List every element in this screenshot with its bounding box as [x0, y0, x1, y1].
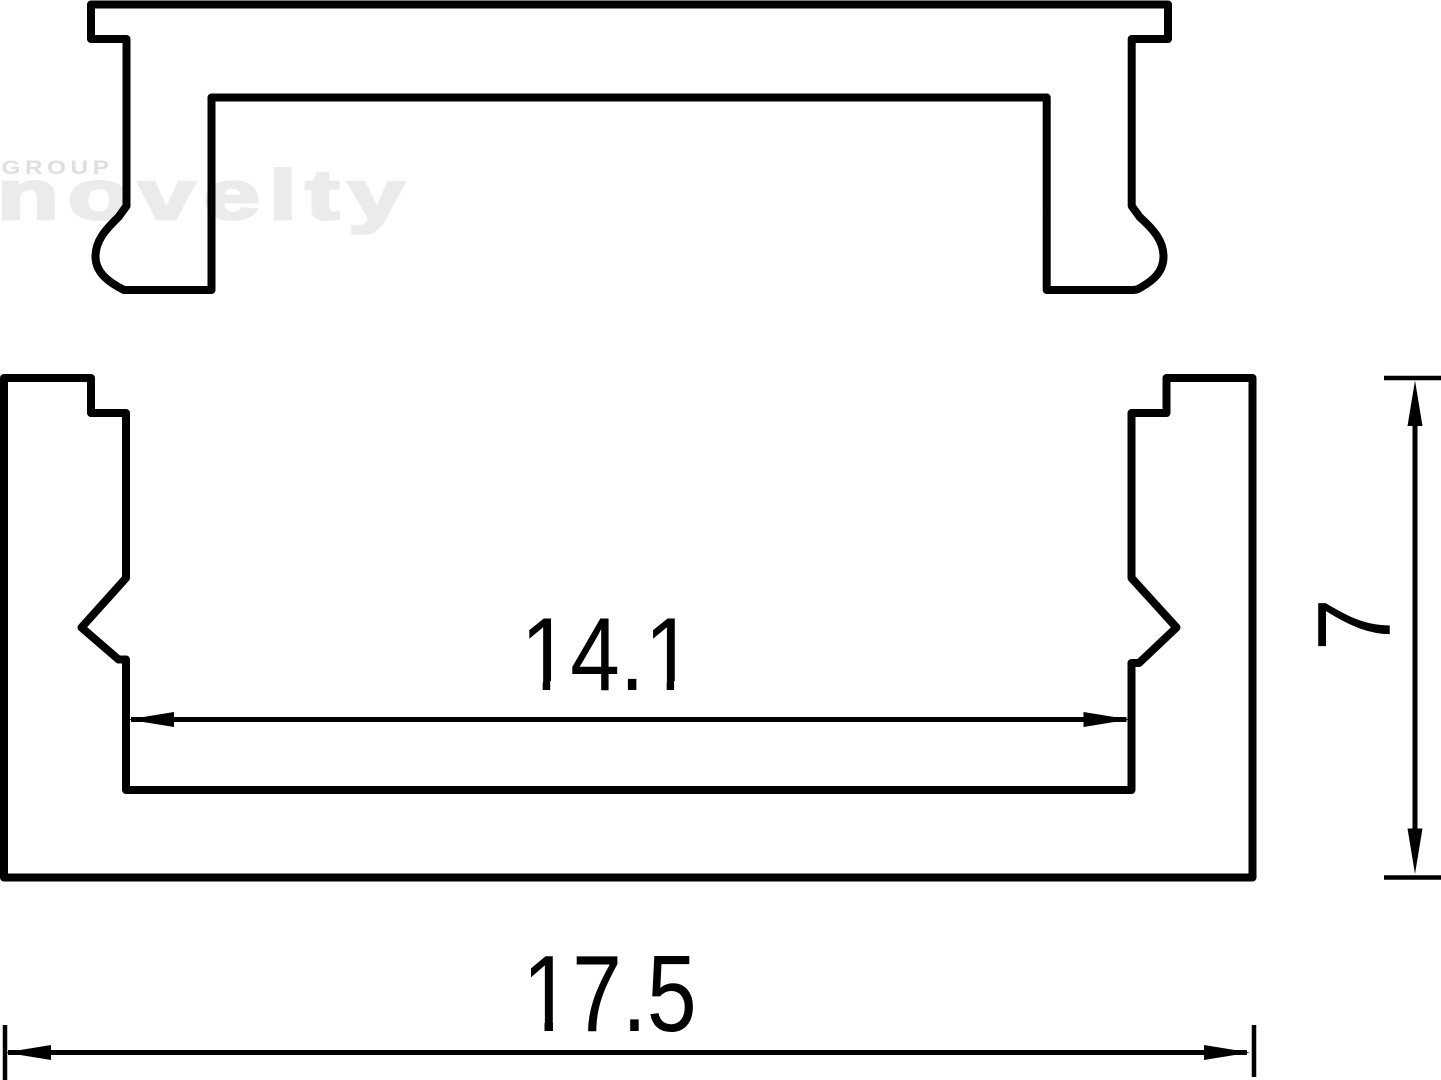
svg-text:14.1: 14.1: [521, 595, 694, 712]
svg-text:17.5: 17.5: [522, 934, 696, 1055]
svg-text:novelty: novelty: [0, 156, 413, 234]
svg-text:7: 7: [1297, 598, 1413, 651]
